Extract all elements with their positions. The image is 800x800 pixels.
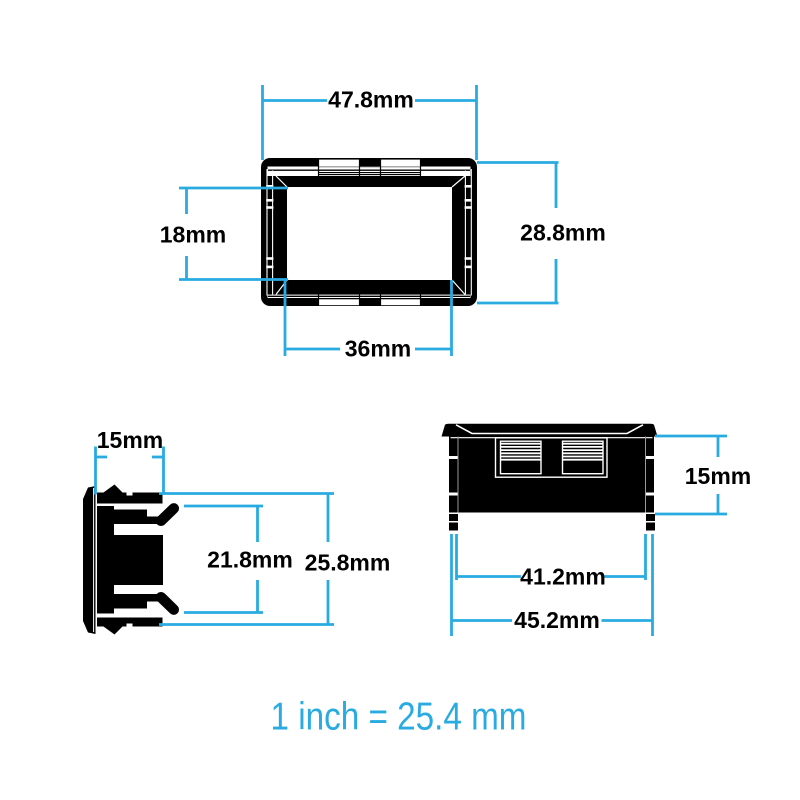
svg-text:18mm: 18mm	[160, 222, 226, 248]
svg-text:45.2mm: 45.2mm	[514, 607, 600, 633]
svg-text:15mm: 15mm	[97, 427, 163, 453]
svg-text:36mm: 36mm	[345, 336, 411, 362]
svg-text:28.8mm: 28.8mm	[520, 220, 606, 246]
svg-text:41.2mm: 41.2mm	[520, 564, 606, 590]
svg-text:25.8mm: 25.8mm	[305, 550, 391, 576]
svg-text:1 inch = 25.4 mm: 1 inch = 25.4 mm	[271, 696, 527, 739]
svg-text:21.8mm: 21.8mm	[207, 547, 293, 573]
svg-text:47.8mm: 47.8mm	[328, 87, 414, 113]
svg-text:15mm: 15mm	[685, 463, 751, 489]
